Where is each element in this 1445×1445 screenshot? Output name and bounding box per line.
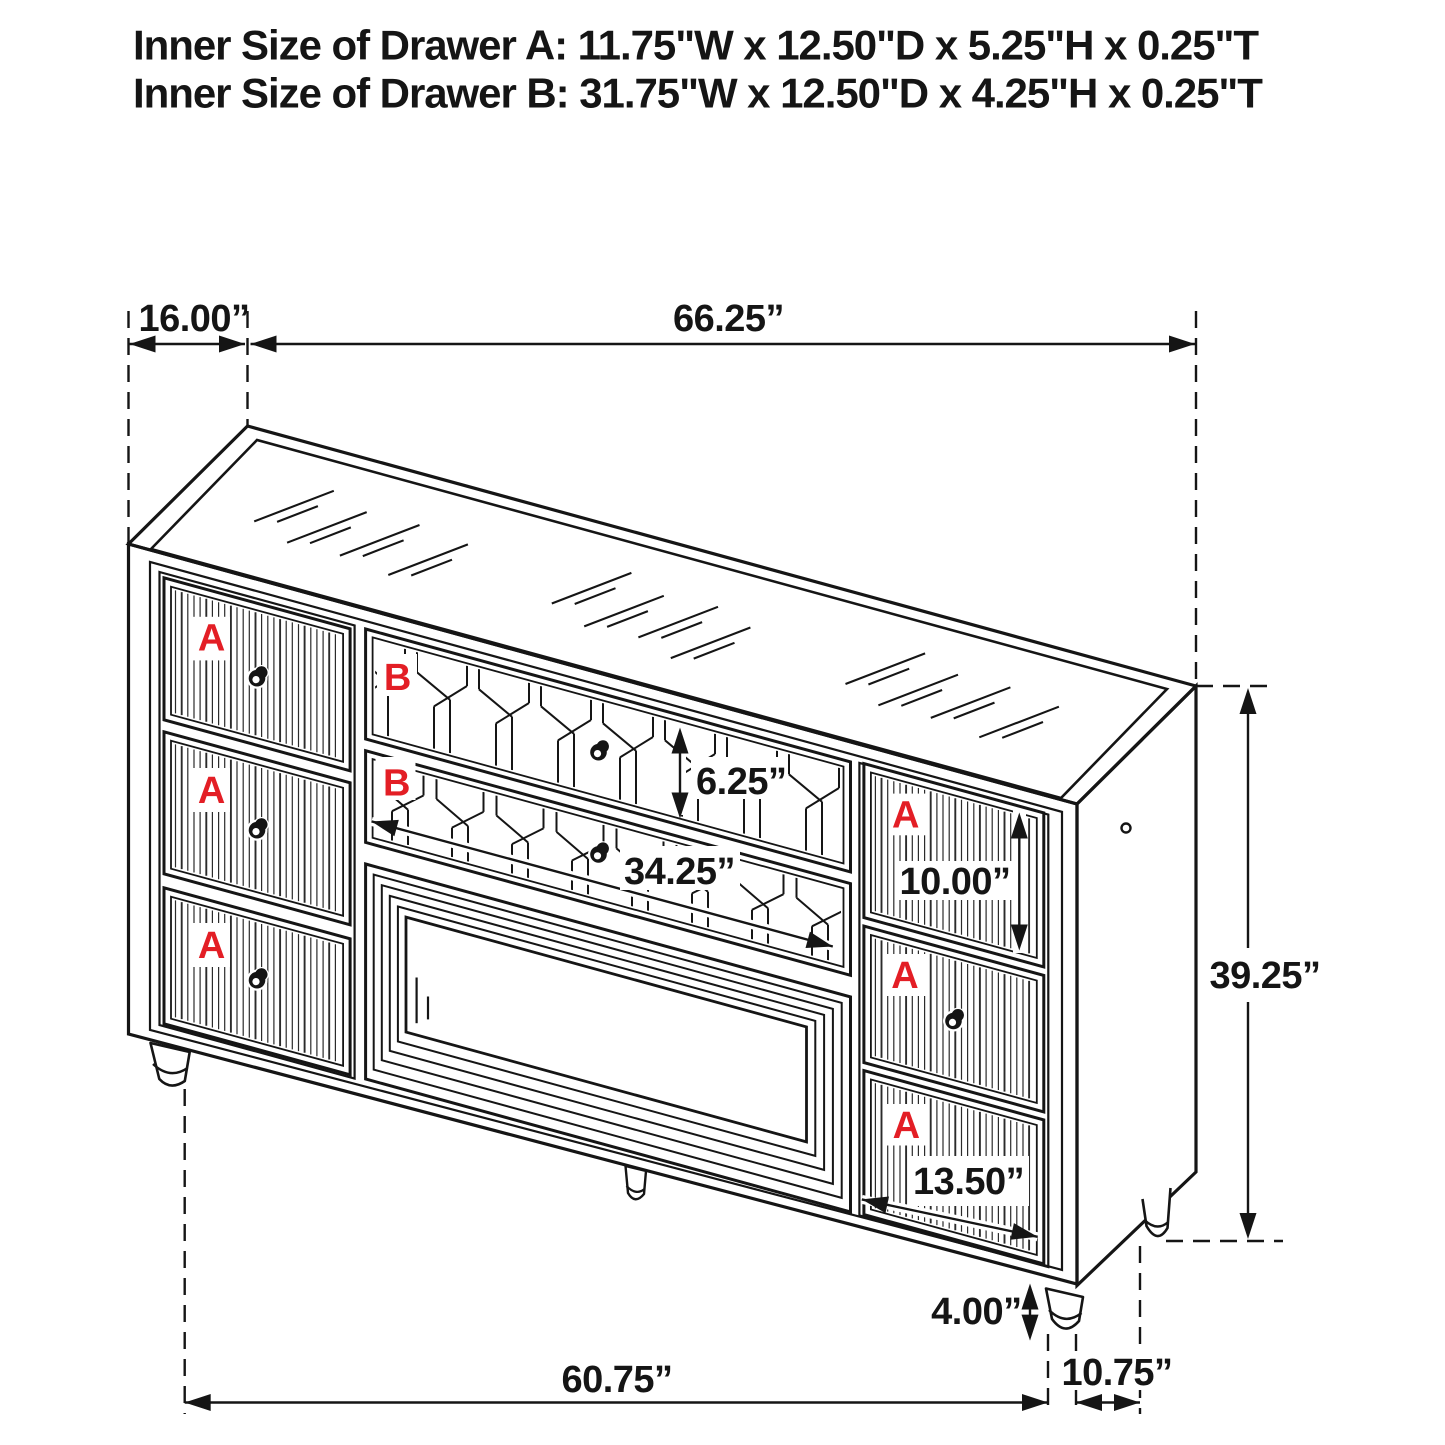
svg-text:66.25”: 66.25”	[673, 298, 784, 340]
svg-text:4.00”: 4.00”	[931, 1291, 1021, 1333]
svg-text:6.25”: 6.25”	[696, 761, 786, 803]
svg-text:A: A	[198, 925, 225, 967]
svg-text:13.50”: 13.50”	[913, 1161, 1024, 1203]
svg-text:34.25”: 34.25”	[624, 851, 735, 893]
svg-text:B: B	[384, 657, 411, 699]
svg-text:A: A	[891, 955, 918, 997]
svg-text:39.25”: 39.25”	[1209, 955, 1320, 997]
svg-text:A: A	[198, 770, 225, 812]
svg-text:A: A	[198, 617, 225, 659]
svg-text:60.75”: 60.75”	[561, 1359, 672, 1401]
svg-text:A: A	[892, 795, 919, 837]
svg-text:10.00”: 10.00”	[899, 861, 1010, 903]
svg-text:Inner Size of Drawer B: 31.75": Inner Size of Drawer B: 31.75"W x 12.50"…	[133, 70, 1263, 117]
svg-text:10.75”: 10.75”	[1061, 1352, 1172, 1394]
svg-text:Inner Size of Drawer A: 11.75": Inner Size of Drawer A: 11.75"W x 12.50"…	[133, 22, 1259, 69]
svg-text:16.00”: 16.00”	[138, 298, 249, 340]
svg-text:B: B	[383, 763, 410, 805]
svg-text:A: A	[893, 1105, 920, 1147]
